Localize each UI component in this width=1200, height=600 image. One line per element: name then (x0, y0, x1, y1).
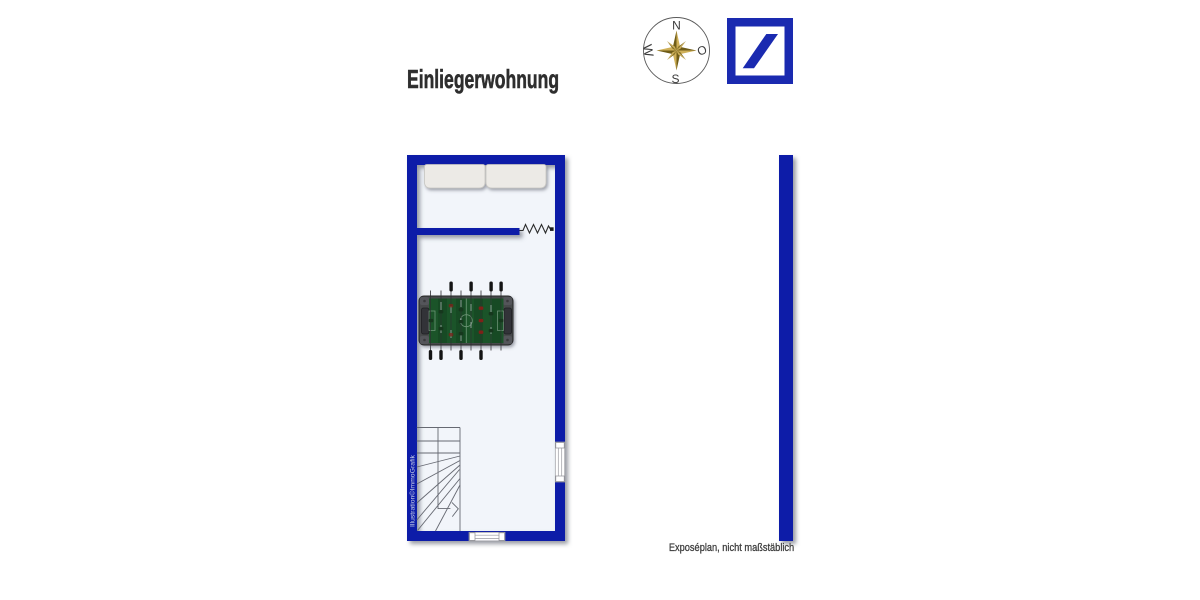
svg-text:Illustration©ImmoGrafik: Illustration©ImmoGrafik (410, 454, 417, 527)
